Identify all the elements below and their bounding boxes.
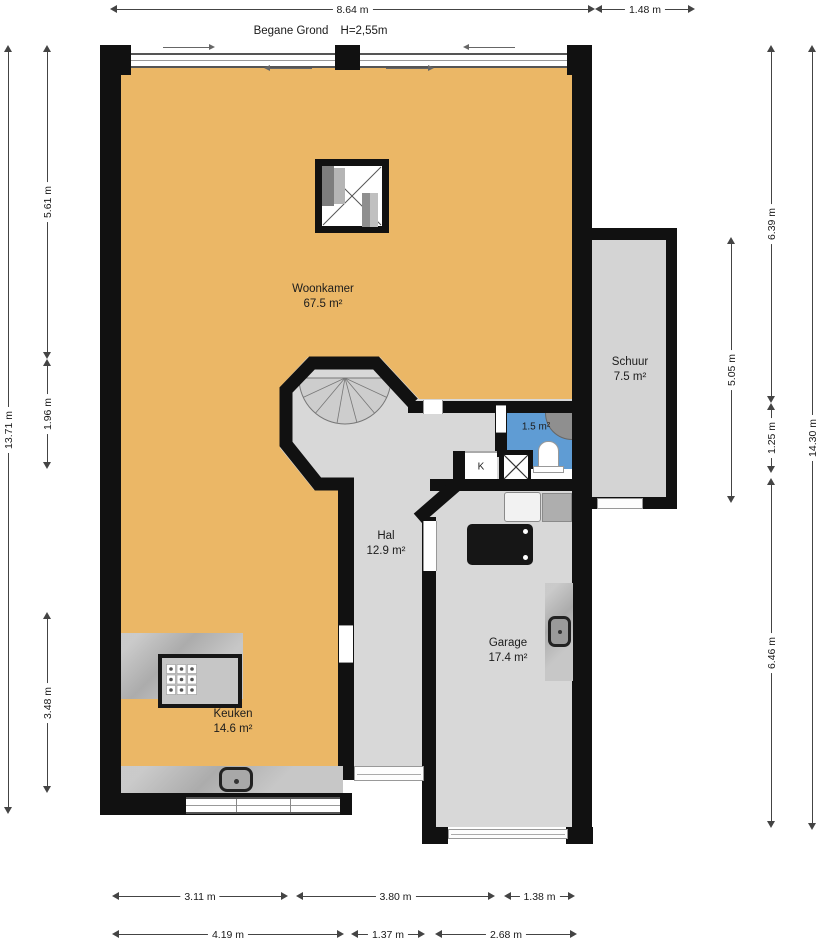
- dim-right-6-46: 6.46 m: [764, 478, 778, 828]
- hal-top-wall-opening: [423, 400, 443, 414]
- dim-left-3-48: 3.48 m: [40, 612, 54, 793]
- woonkamer-label: Woonkamer67.5 m²: [292, 282, 354, 312]
- dim-bottom-1-37: 1.37 m: [351, 927, 425, 941]
- dim-bottom-1-38: 1.38 m: [504, 889, 575, 903]
- dim-right-5-05: 5.05 m: [724, 237, 738, 503]
- slide-arrow-icon: [386, 68, 432, 69]
- garage-sink-icon: [548, 616, 571, 647]
- toilet-icon: [538, 441, 559, 469]
- dim-bottom-4-19: 4.19 m: [112, 927, 344, 941]
- dim-bottom-2-68: 2.68 m: [435, 927, 577, 941]
- dim-right-6-39: 6.39 m: [764, 45, 778, 403]
- schuur-top-wall: [592, 228, 677, 240]
- schuur-right-wall: [666, 228, 677, 509]
- kast-door: [465, 451, 497, 453]
- dim-left-1-96: 1.96 m: [40, 359, 54, 469]
- ceiling-height-label: H=2,55m: [341, 25, 388, 37]
- slide-arrow-icon: [163, 47, 213, 48]
- toilet-base: [533, 466, 564, 473]
- floorplan-begane-grond: Begane Grond H=2,55m: [0, 0, 820, 944]
- dim-left-13-71: 13.71 m: [1, 45, 15, 814]
- dim-top-1: 8.64 m: [110, 2, 595, 16]
- page-title: Begane Grond: [254, 25, 329, 37]
- kast-label: K: [478, 461, 485, 474]
- dim-left-5-61: 5.61 m: [40, 45, 54, 359]
- dim-bottom-3-11: 3.11 m: [112, 889, 288, 903]
- dim-right-14-30: 14.30 m: [805, 45, 819, 830]
- dim-right-1-25: 1.25 m: [764, 403, 778, 473]
- slide-arrow-icon: [465, 47, 515, 48]
- washer-icon: [504, 492, 541, 522]
- keuken-hal-door: [339, 625, 353, 663]
- garage-overhead-door: [448, 829, 568, 839]
- sliding-window-left: [131, 53, 335, 68]
- sliding-window-right: [360, 53, 567, 68]
- left-wall: [100, 45, 121, 815]
- toilet-door: [496, 405, 506, 433]
- keuken-label: Keuken14.6 m²: [213, 707, 252, 737]
- slide-arrow-icon: [266, 68, 312, 69]
- dim-bottom-3-80: 3.80 m: [296, 889, 495, 903]
- garage-label: Garage17.4 m²: [489, 636, 528, 666]
- top-wall-post-left: [100, 45, 131, 75]
- freezer-icon: [467, 524, 533, 565]
- dim-top-2: 1.48 m: [595, 2, 695, 16]
- garage-door-from-hal: [423, 521, 437, 571]
- hal-label: Hal12.9 m²: [367, 529, 406, 559]
- top-wall-post-middle: [335, 45, 360, 70]
- fireplace-icon: [315, 157, 389, 235]
- right-wall: [572, 45, 592, 844]
- top-wall-post-right: [567, 45, 592, 75]
- toilet-label: 1.5 m²: [522, 421, 550, 434]
- garage-bottom-post-left: [422, 827, 448, 844]
- hal-back-door: [354, 766, 424, 781]
- schuur-door: [597, 498, 643, 509]
- kitchen-sink-icon: [219, 767, 253, 792]
- garage-bottom-post-right: [566, 827, 593, 844]
- keuken-window: [186, 797, 340, 814]
- dryer-icon: [542, 493, 572, 522]
- cooktop-icon: [158, 654, 242, 708]
- schuur-label: Schuur7.5 m²: [612, 355, 648, 385]
